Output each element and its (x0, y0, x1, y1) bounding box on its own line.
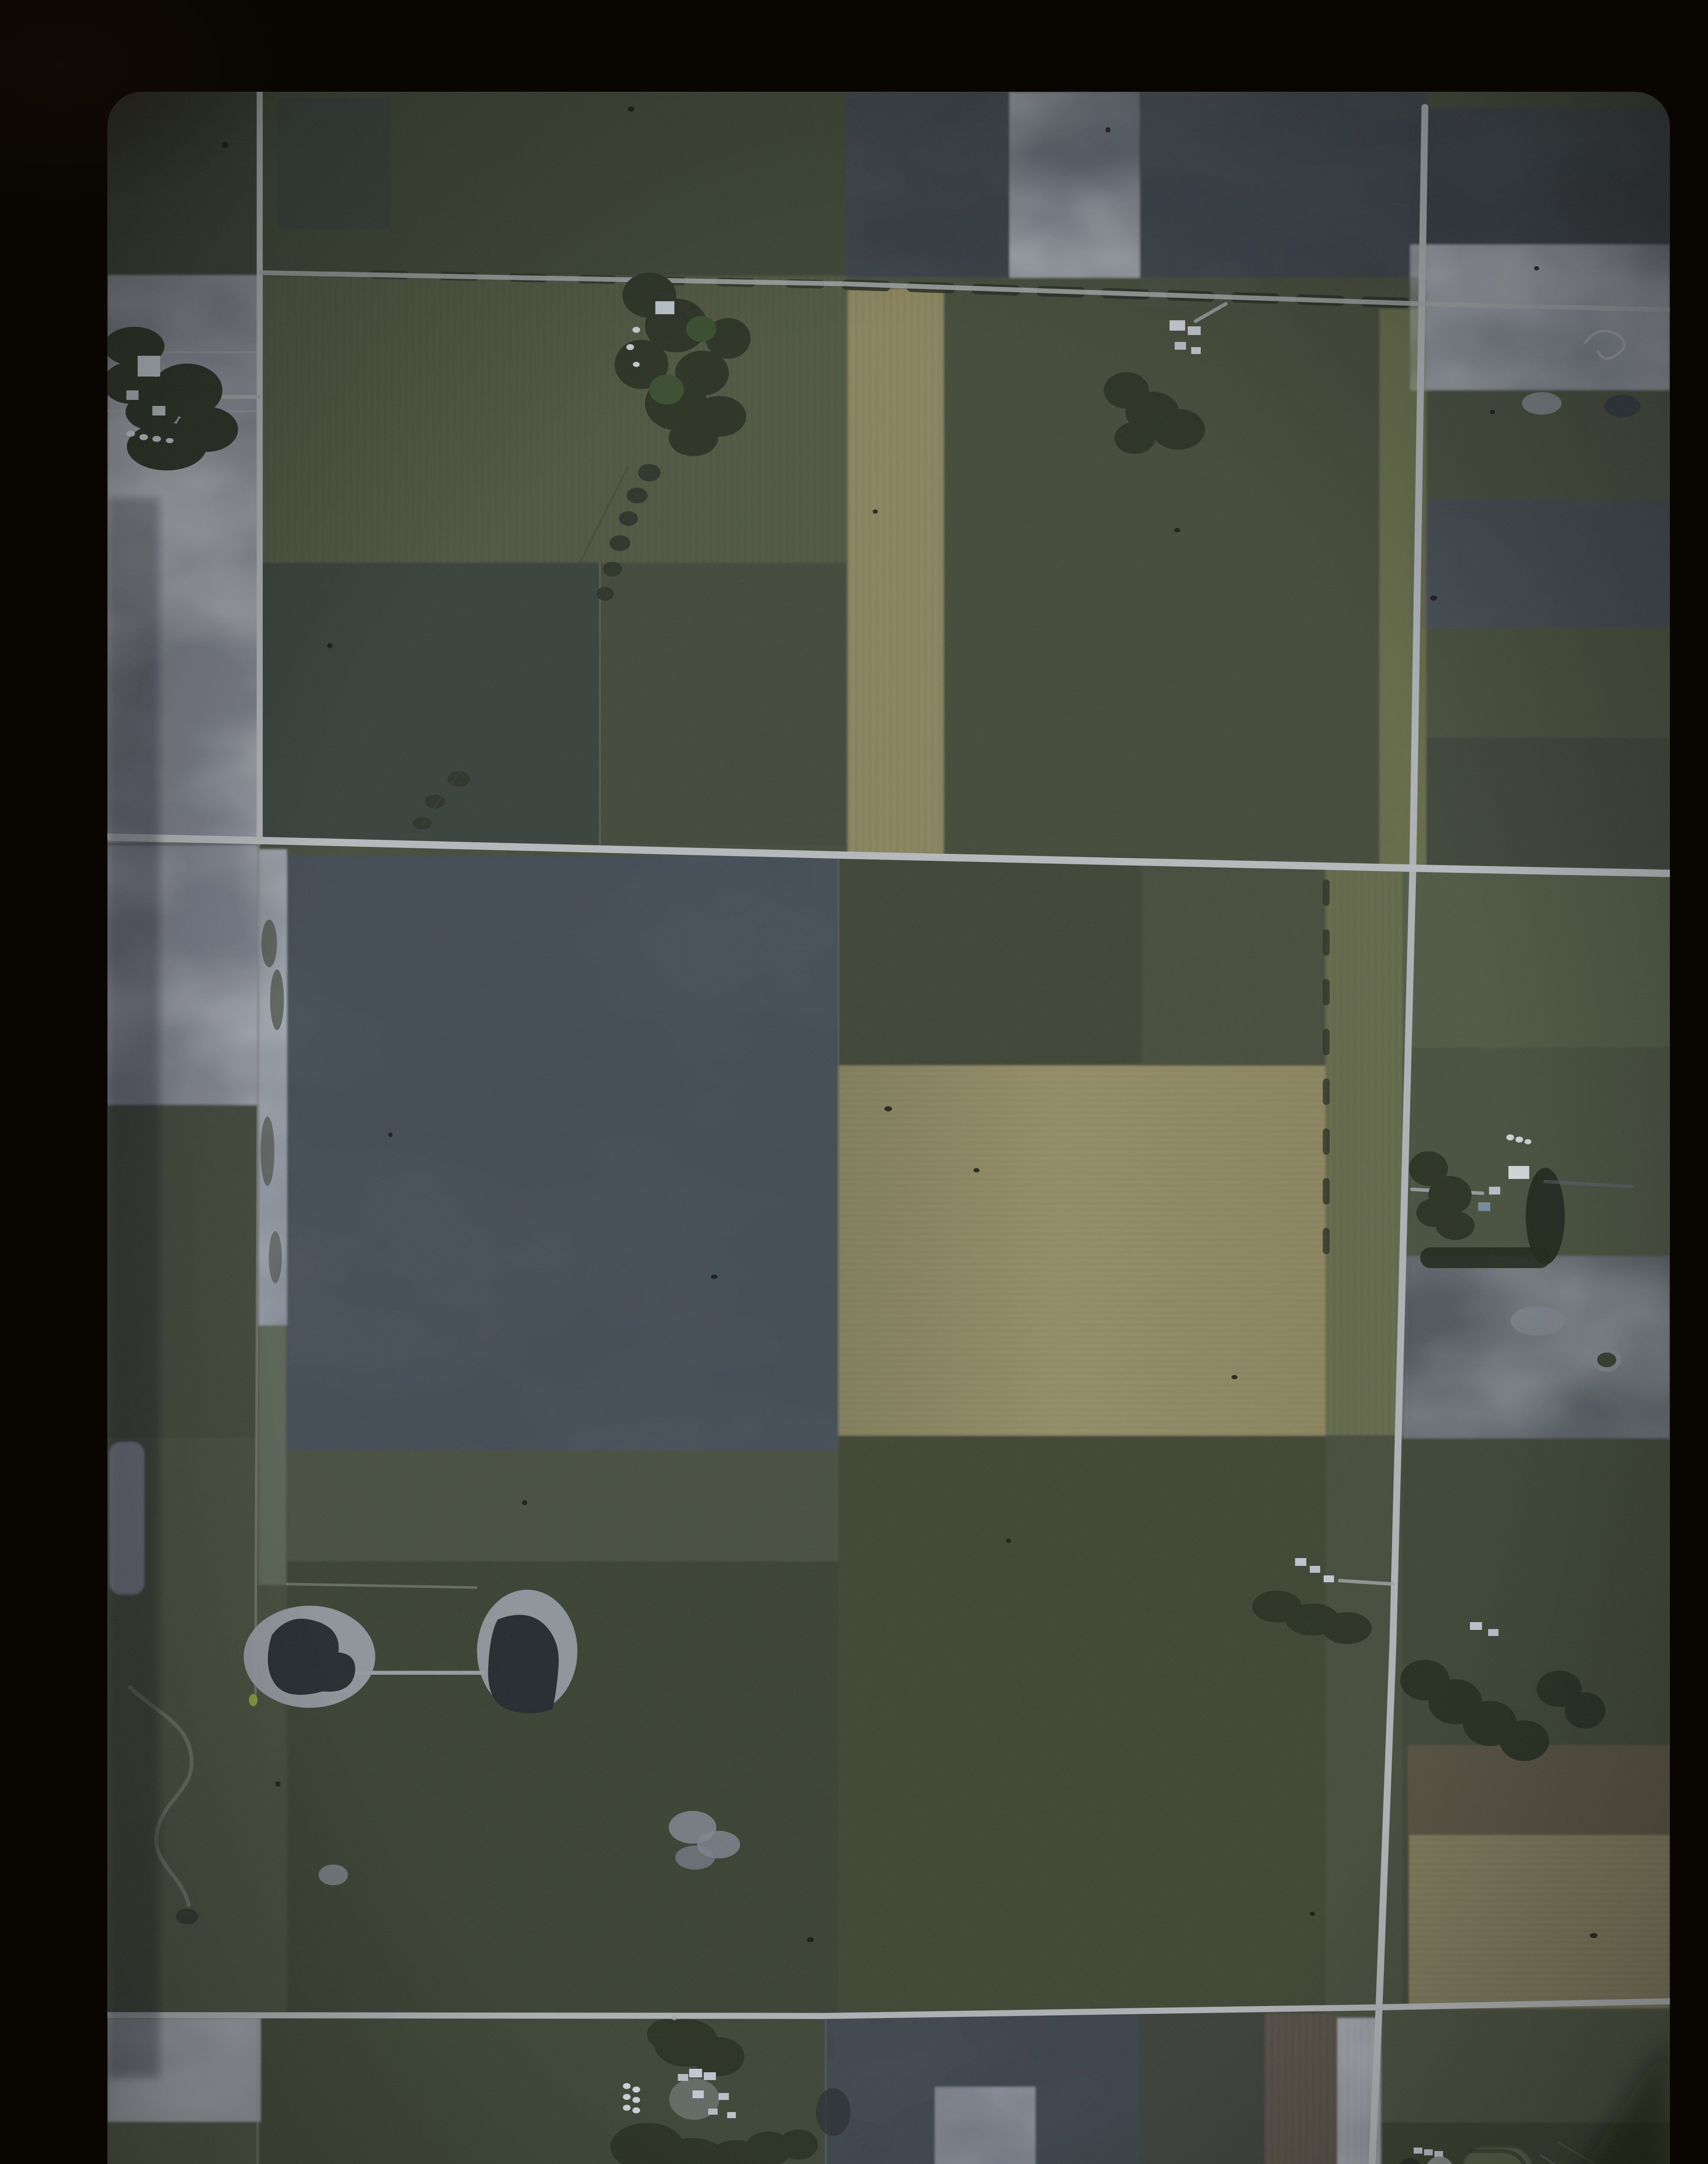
slide-mount (0, 0, 1708, 2164)
aerial-photo-scene (0, 0, 1708, 2164)
effects-layer (107, 92, 1670, 2164)
aerial-photograph (103, 92, 1670, 2164)
film-grain (107, 92, 1670, 2164)
